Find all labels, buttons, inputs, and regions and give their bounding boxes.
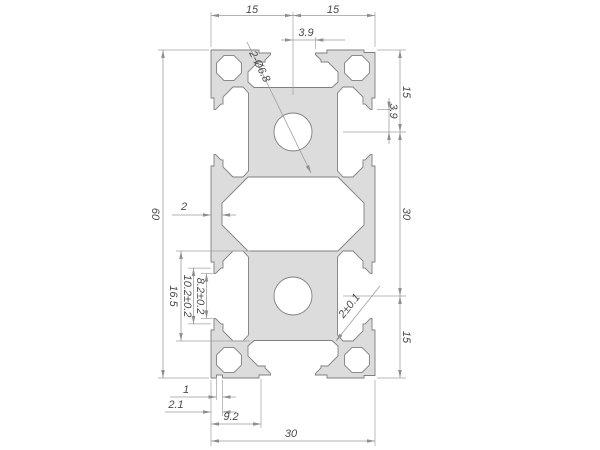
dim-web-2-tol: 2±0.1 xyxy=(336,292,363,322)
dim-right-30: 30 xyxy=(400,208,412,221)
extrusion-profile-drawing: 15 15 3.9 2-Ø6.8 3.9 15 30 15 60 2 16.5 … xyxy=(0,0,600,450)
dim-right-top-15: 15 xyxy=(400,86,412,99)
dim-bottom-30: 30 xyxy=(285,428,298,440)
dim-slot-10-2: 10.2±0.2 xyxy=(181,275,193,318)
dim-slot-16-5: 16.5 xyxy=(167,285,179,307)
dim-left-60: 60 xyxy=(149,208,161,221)
dim-top-right-15: 15 xyxy=(327,4,340,16)
dim-right-3-9: 3.9 xyxy=(387,103,399,118)
dim-right-bottom-15: 15 xyxy=(400,331,412,344)
dim-slot-8-2: 8.2±0.2 xyxy=(194,278,206,315)
dim-bottom-9-2: 9.2 xyxy=(223,411,238,423)
dim-top-left-15: 15 xyxy=(246,4,259,16)
dim-top-3-9: 3.9 xyxy=(298,27,313,39)
dim-bottom-1: 1 xyxy=(183,384,189,396)
technical-drawing-canvas: 15 15 3.9 2-Ø6.8 3.9 15 30 15 60 2 16.5 … xyxy=(0,0,600,450)
dim-bottom-2-1: 2.1 xyxy=(167,399,183,411)
dim-wall-2: 2 xyxy=(180,201,187,213)
profile-outline xyxy=(211,50,375,378)
